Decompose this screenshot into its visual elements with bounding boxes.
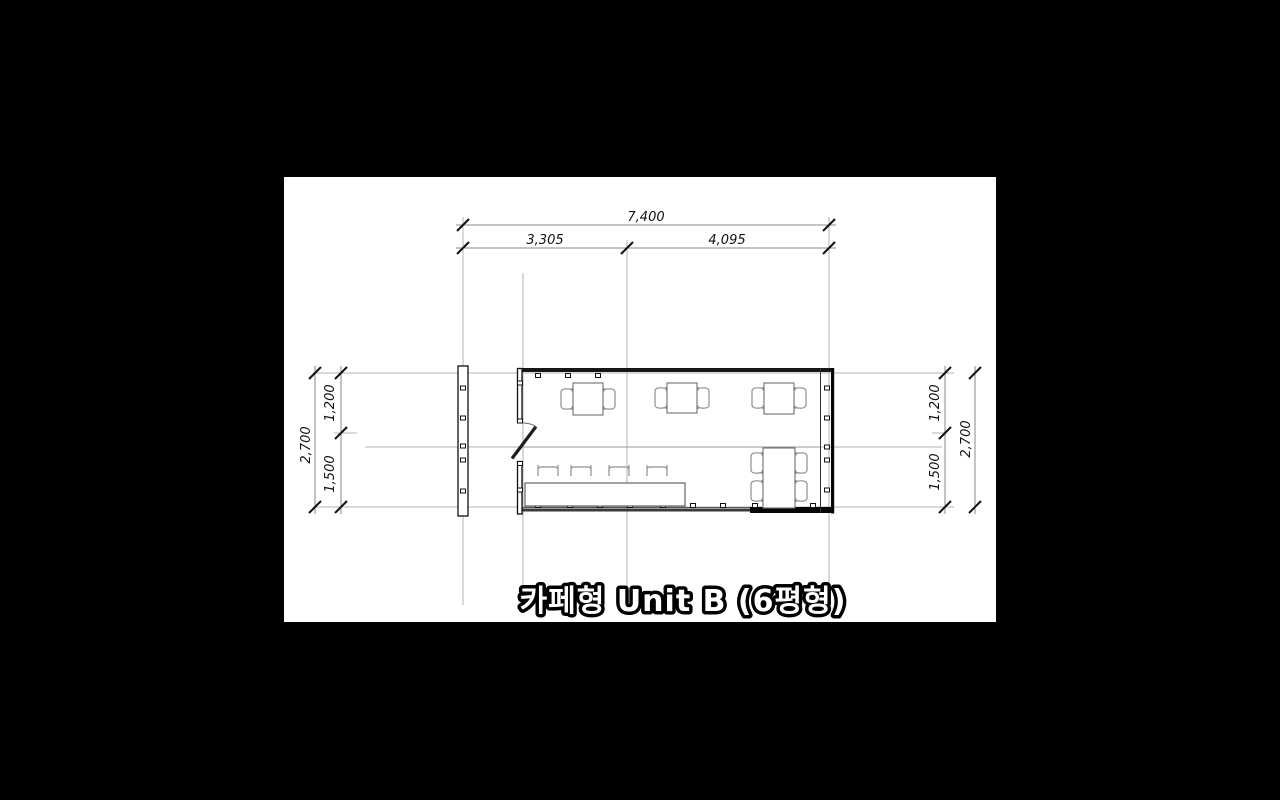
counter xyxy=(525,483,685,506)
door-leaf xyxy=(512,427,536,459)
wall-right-outer xyxy=(831,368,834,514)
dim-label-right-lower: 1,500 xyxy=(928,453,943,490)
chair xyxy=(796,480,807,502)
drawing-title: 카페형 Unit B (6평형) xyxy=(520,584,847,619)
wall-stud xyxy=(461,416,466,420)
chair xyxy=(561,388,572,410)
wall-stud xyxy=(461,444,466,448)
wall-stud xyxy=(825,416,830,420)
chair xyxy=(655,387,666,409)
wall-stud xyxy=(461,386,466,390)
chair xyxy=(751,480,762,502)
chair xyxy=(698,387,709,409)
table xyxy=(573,383,603,415)
bar-stool xyxy=(609,465,629,476)
grid-lines xyxy=(313,217,954,607)
wall-stud xyxy=(536,374,541,378)
wall-stud xyxy=(518,462,523,466)
entrance-door xyxy=(512,423,537,459)
wall-stud xyxy=(461,458,466,462)
wall-stud xyxy=(596,374,601,378)
dim-label-left-overall: 2,700 xyxy=(299,426,314,463)
floor-plan-canvas: 7,400 3,305 4,095 2,700 1,200 1,500 1,20… xyxy=(284,177,996,622)
dim-label-right-span: 4,095 xyxy=(708,233,745,248)
dim-label-right-overall: 2,700 xyxy=(959,420,974,457)
wall-left-upper xyxy=(518,369,523,423)
wall-stud xyxy=(461,489,466,493)
dim-label-left-upper: 1,200 xyxy=(323,384,338,421)
dimension-right: 1,200 2,700 1,500 xyxy=(928,366,981,514)
floor-plan-svg: 7,400 3,305 4,095 2,700 1,200 1,500 1,20… xyxy=(284,177,996,622)
table xyxy=(667,383,697,413)
wall-stud xyxy=(518,381,523,385)
wall-stud xyxy=(753,504,758,508)
dim-label-left-span: 3,305 xyxy=(526,233,563,248)
wall-bottom-left xyxy=(517,509,750,512)
deck-wall xyxy=(458,366,468,516)
furniture xyxy=(525,383,807,508)
chair xyxy=(795,387,806,409)
wall-stud xyxy=(566,374,571,378)
table xyxy=(764,383,794,414)
chair xyxy=(751,452,762,474)
wall-stud xyxy=(721,504,726,508)
page-background: { "title": { "text": "카페형 Unit B (6평형)" … xyxy=(0,0,1280,800)
chair xyxy=(752,387,763,409)
wall-stud xyxy=(691,504,696,508)
wall-stud xyxy=(825,488,830,492)
dimension-left: 2,700 1,200 1,500 xyxy=(299,366,347,514)
chair xyxy=(796,452,807,474)
bar-stool xyxy=(538,465,558,476)
dimension-top: 7,400 3,305 4,095 xyxy=(456,210,836,254)
wall-stud xyxy=(811,504,816,508)
wall-stud xyxy=(825,445,830,449)
table xyxy=(763,448,795,508)
wall-stud xyxy=(518,488,523,492)
bar-stool xyxy=(571,465,591,476)
wall-top xyxy=(517,368,834,372)
wall-stud xyxy=(518,419,523,423)
wall-stud xyxy=(825,458,830,462)
dim-label-left-lower: 1,500 xyxy=(323,455,338,492)
wall-stud xyxy=(825,386,830,390)
chair xyxy=(604,388,615,410)
dim-label-total-width: 7,400 xyxy=(627,210,664,225)
dim-label-right-upper: 1,200 xyxy=(928,384,943,421)
bar-stool xyxy=(647,465,667,476)
